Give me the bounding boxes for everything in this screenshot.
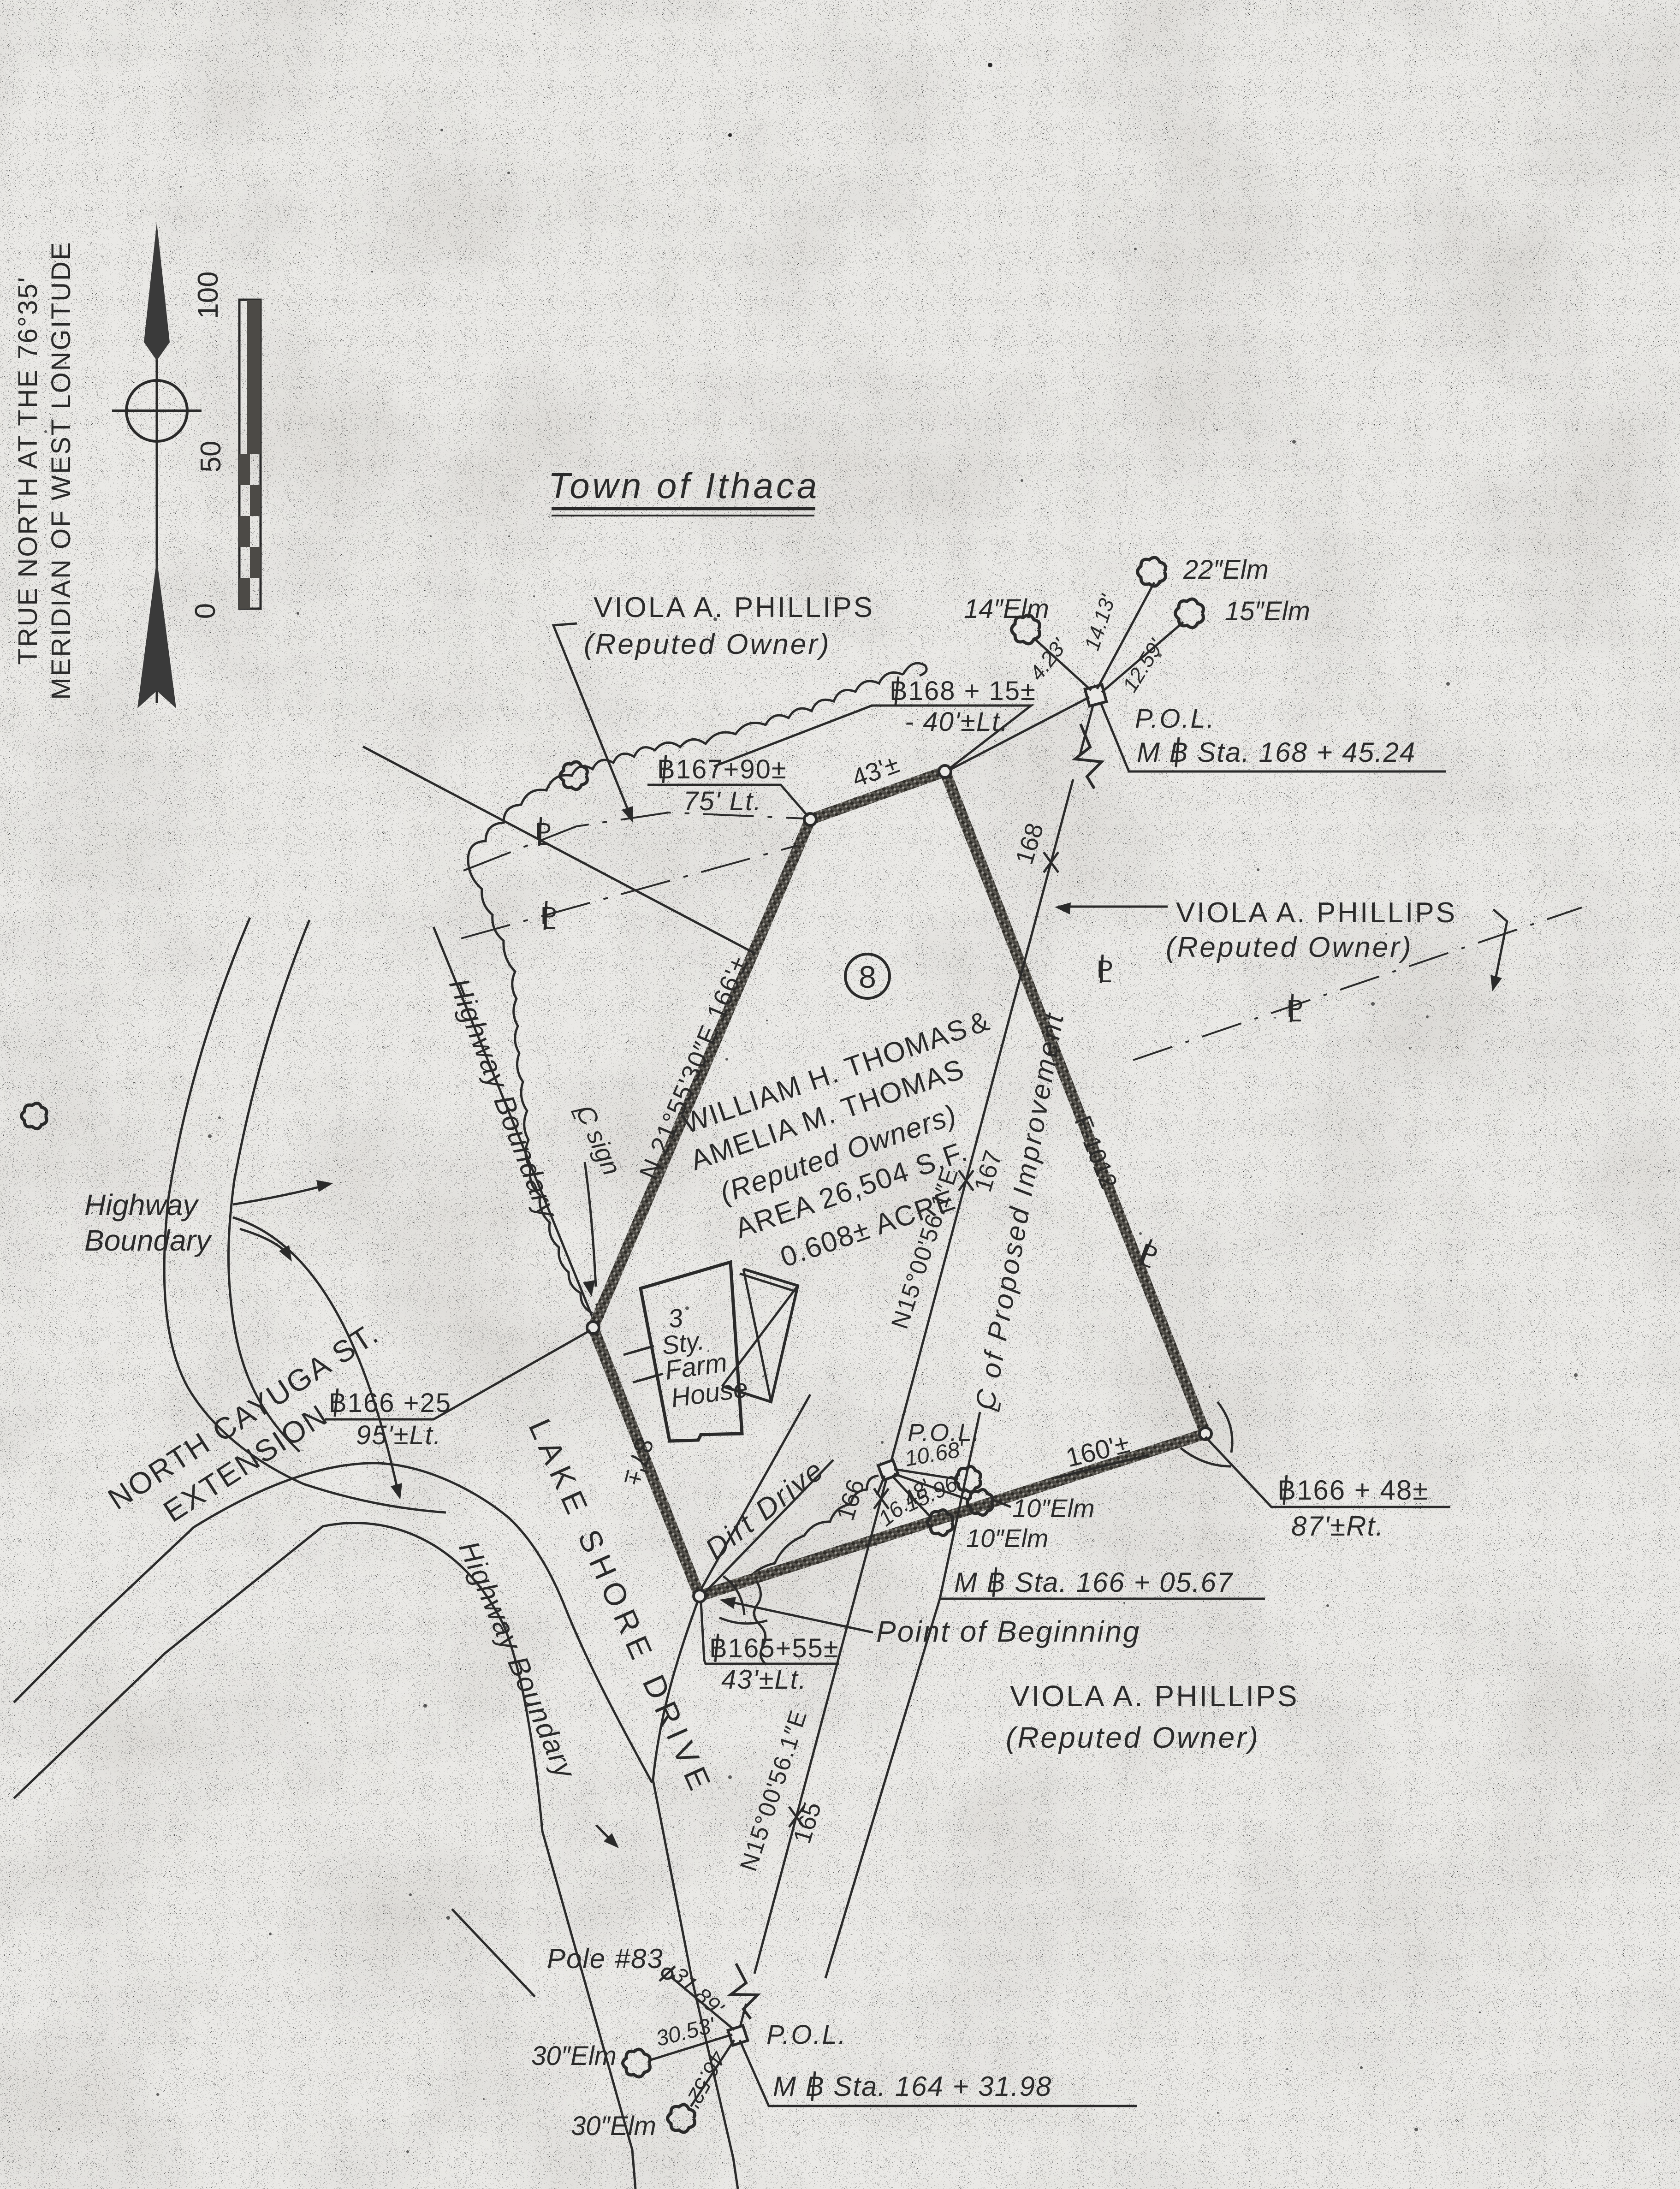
svg-text:B165+55±: B165+55± (709, 1633, 839, 1663)
svg-text:87'±Rt.: 87'±Rt. (1291, 1511, 1384, 1542)
svg-text:10″Elm: 10″Elm (1012, 1494, 1095, 1523)
svg-text:Highway: Highway (84, 1188, 199, 1222)
svg-text:100: 100 (192, 271, 224, 319)
svg-text:Boundary: Boundary (84, 1224, 213, 1257)
svg-text:- 40'±Lt.: - 40'±Lt. (905, 707, 1009, 737)
svg-text:15″Elm: 15″Elm (1225, 596, 1310, 626)
svg-text:95'±Lt.: 95'±Lt. (356, 1420, 442, 1450)
svg-text:30″Elm: 30″Elm (571, 2111, 656, 2141)
svg-text:50: 50 (195, 441, 227, 473)
svg-text:B166 +25: B166 +25 (329, 1388, 451, 1418)
svg-text:VIOLA A. PHILLIPS: VIOLA A. PHILLIPS (594, 592, 874, 623)
svg-text:22″Elm: 22″Elm (1183, 555, 1269, 585)
svg-text:Point of Beginning: Point of Beginning (876, 1615, 1141, 1648)
svg-text:P.O.L.: P.O.L. (766, 2020, 847, 2050)
svg-text:(Reputed Owner): (Reputed Owner) (1166, 931, 1413, 963)
svg-text:14″Elm: 14″Elm (964, 594, 1049, 624)
svg-text:MERIDIAN OF WEST LONGITUDE: MERIDIAN OF WEST LONGITUDE (46, 241, 76, 700)
svg-text:VIOLA A. PHILLIPS: VIOLA A. PHILLIPS (1010, 1679, 1299, 1713)
svg-text:Town of Ithaca: Town of Ithaca (548, 465, 819, 506)
svg-text:Pole #83: Pole #83 (547, 1943, 664, 1974)
svg-text:P.O.L.: P.O.L. (1135, 704, 1216, 734)
svg-text:(Reputed Owner): (Reputed Owner) (584, 629, 831, 660)
svg-text:B168 + 15±: B168 + 15± (890, 676, 1036, 706)
svg-text:B167+90±: B167+90± (657, 754, 787, 784)
svg-text:VIOLA A. PHILLIPS: VIOLA A. PHILLIPS (1176, 897, 1457, 929)
svg-text:0: 0 (190, 603, 221, 619)
svg-text:B166 + 48±: B166 + 48± (1277, 1475, 1429, 1506)
svg-text:30″Elm: 30″Elm (531, 2041, 617, 2071)
svg-text:43'±Lt.: 43'±Lt. (721, 1665, 807, 1695)
svg-text:10″Elm: 10″Elm (966, 1524, 1049, 1553)
svg-text:TRUE NORTH AT THE 76°35': TRUE NORTH AT THE 76°35' (13, 276, 43, 664)
svg-text:75' Lt.: 75' Lt. (683, 786, 762, 816)
svg-text:(Reputed Owner): (Reputed Owner) (1006, 1721, 1260, 1754)
svg-text:8: 8 (859, 960, 876, 995)
